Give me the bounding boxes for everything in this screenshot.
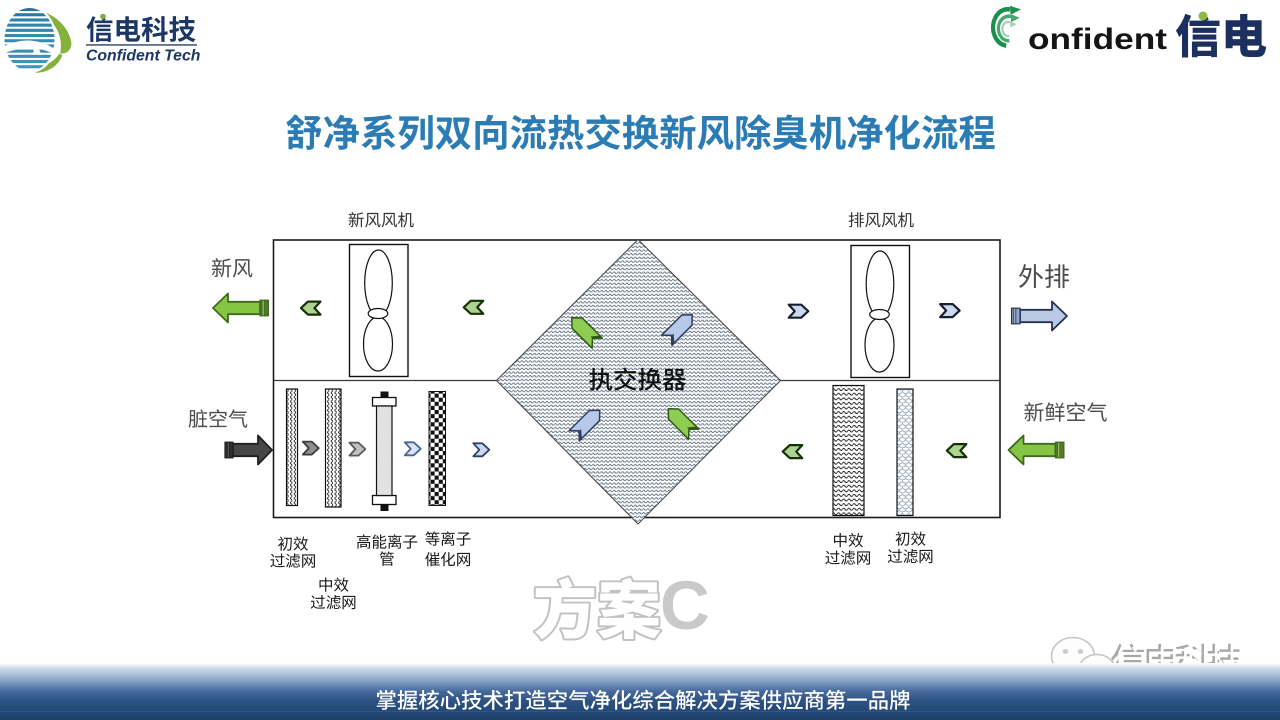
svg-text:onfident: onfident (1028, 23, 1167, 56)
svg-text:C: C (660, 567, 710, 644)
svg-text:Confident Tech: Confident Tech (86, 48, 200, 65)
